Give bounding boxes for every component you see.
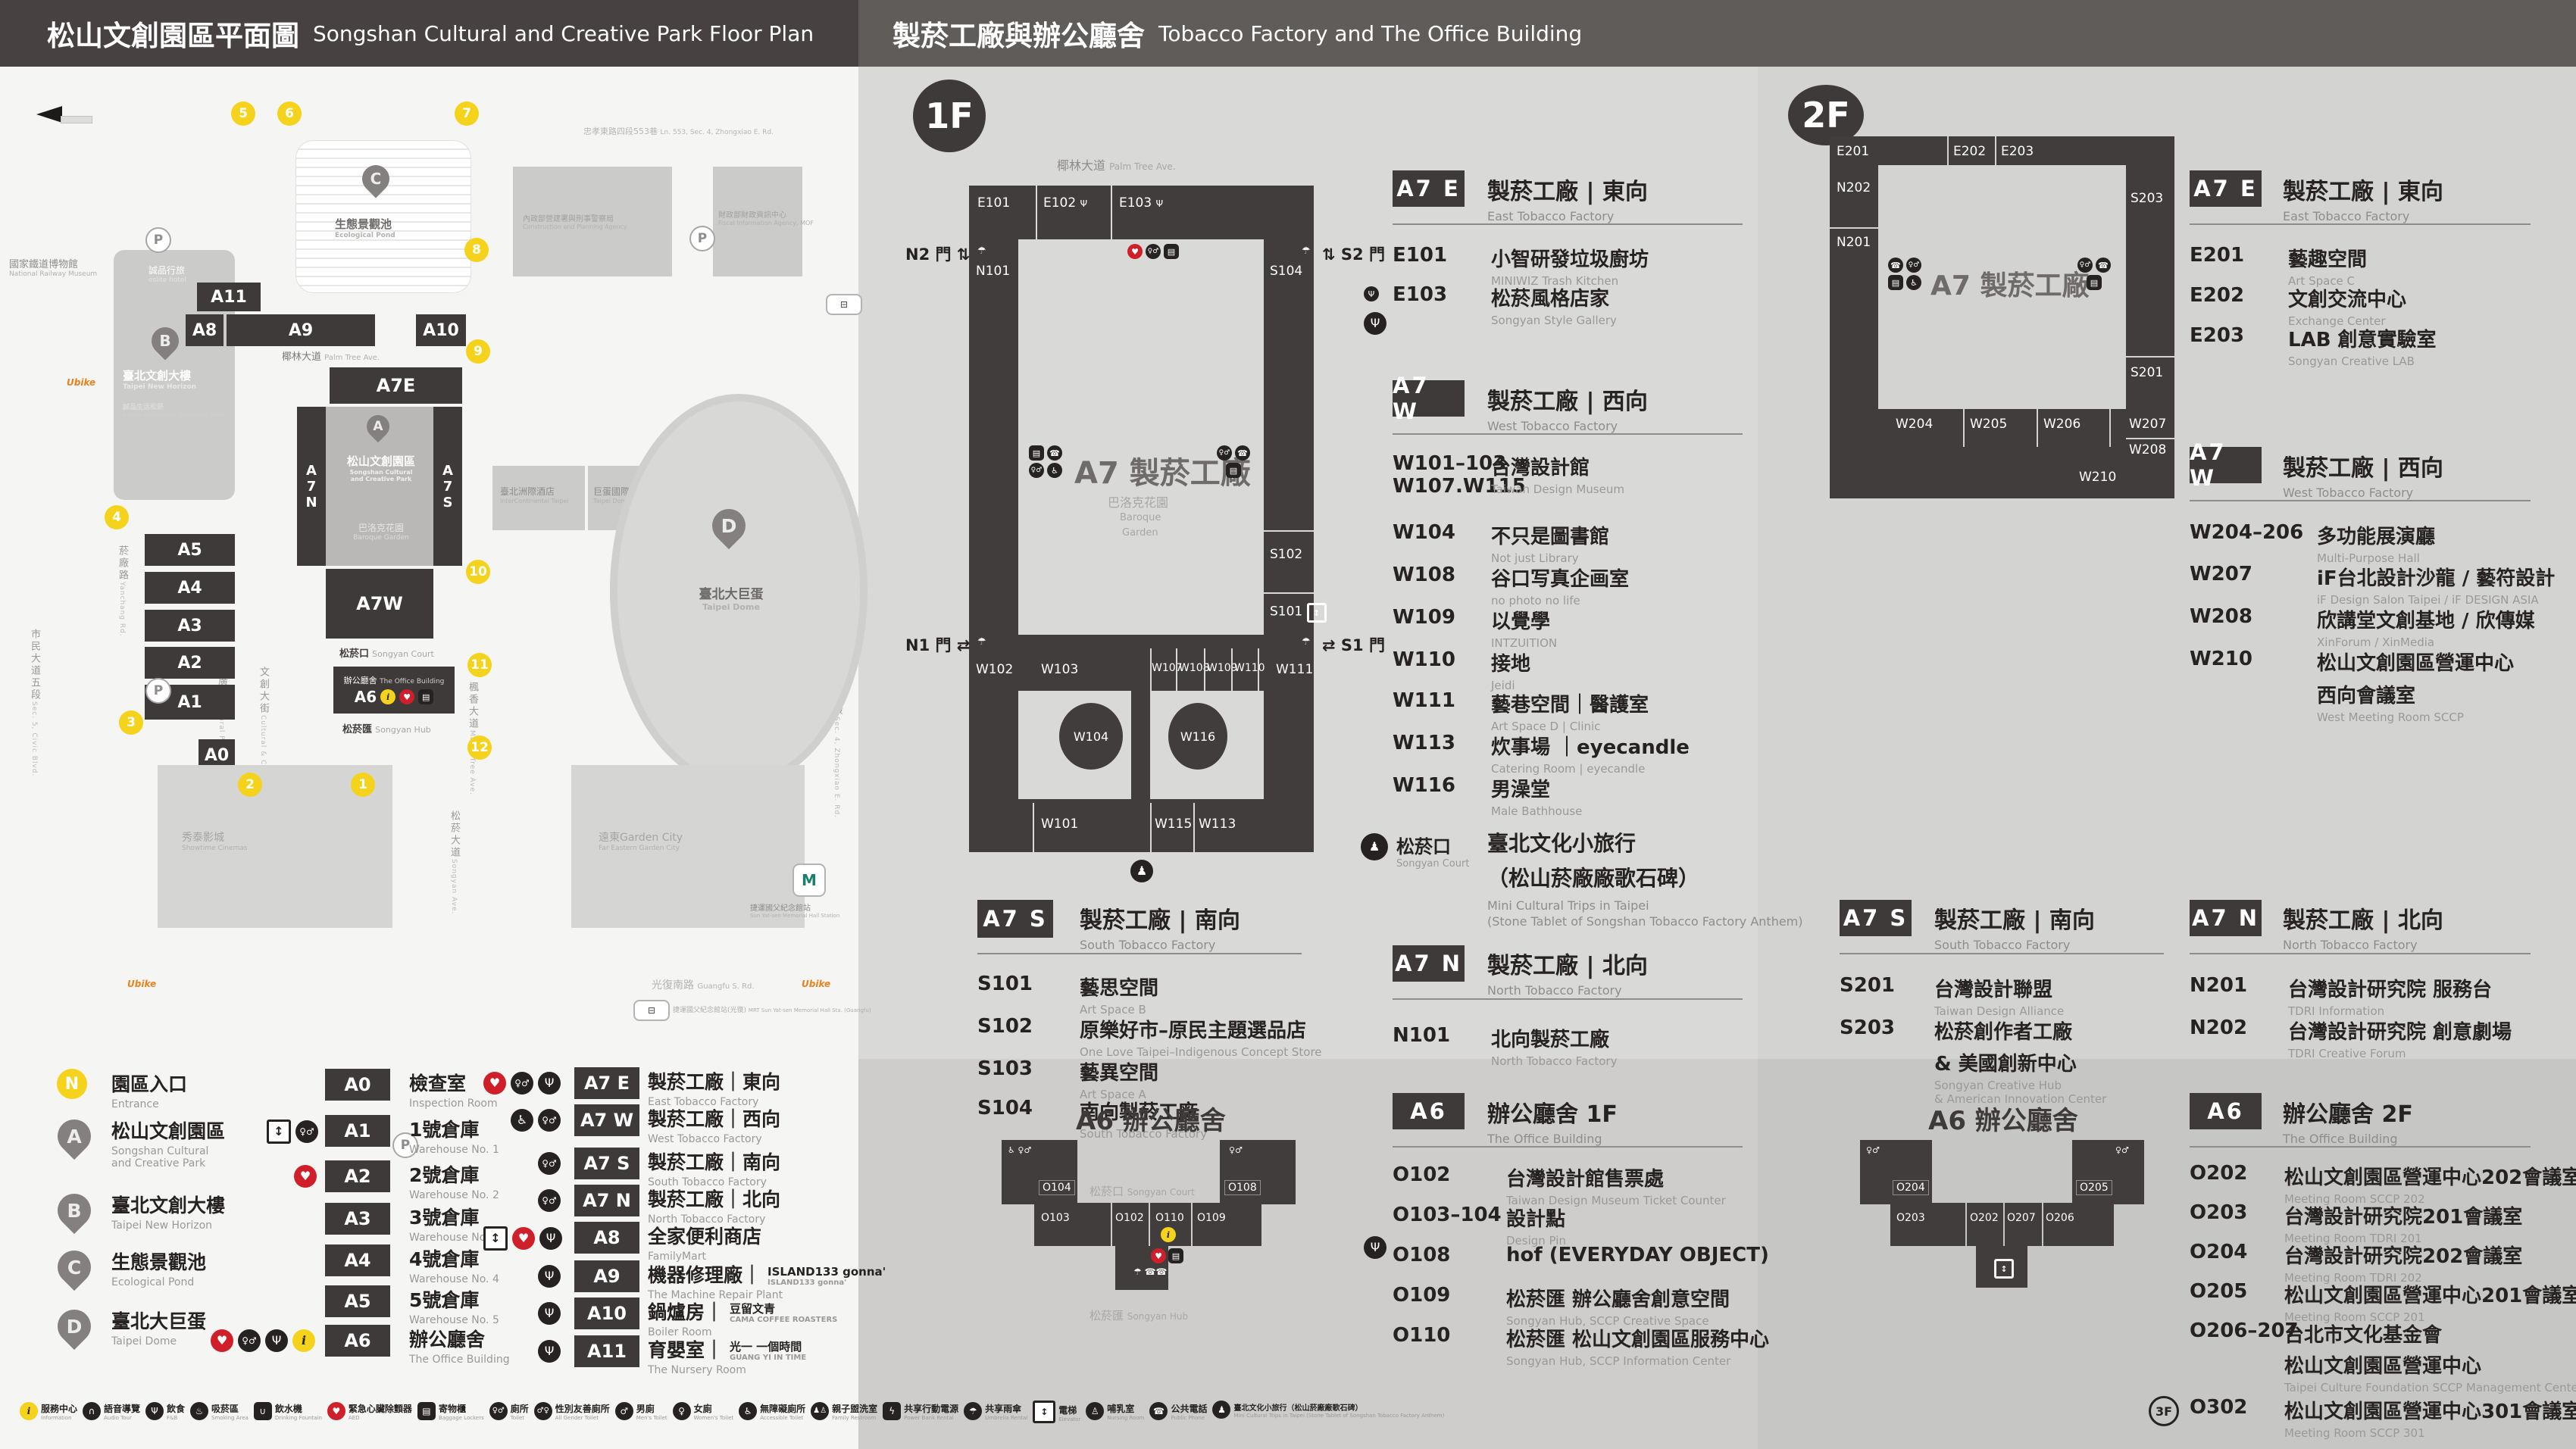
room-o205: O205 — [2076, 1180, 2112, 1195]
header-left: 松山文創園區平面圖 Songshan Cultural and Creative… — [0, 0, 858, 67]
family-restroom-icon: ♟♙ — [811, 1402, 829, 1420]
poi-intercontinental-label: 臺北洲際酒店InterContinental Taipei — [500, 485, 568, 504]
legend-a9-icons: Ψ — [538, 1265, 561, 1288]
entrance-4: 4 — [105, 505, 129, 529]
legend-badge-a8: A8 — [574, 1222, 639, 1254]
aed-icon: ♥ — [483, 1072, 506, 1095]
aed-icon: ♥ — [294, 1165, 317, 1188]
strip-phone: ☎ 公共電話Public Phone — [1149, 1401, 1207, 1421]
room-s201: S201 — [2131, 365, 2163, 380]
legend-marker-d: 臺北大巨蛋Taipei Dome — [111, 1307, 206, 1348]
info-icon: i — [20, 1402, 38, 1420]
accessible-icon: ♿ — [511, 1109, 533, 1132]
room-n201: N201 — [1837, 235, 1871, 250]
legend-a10-icons: Ψ — [538, 1302, 561, 1325]
restroom-icon: ♀♂ — [538, 1109, 561, 1132]
food-icon: Ψ — [538, 1265, 561, 1288]
section-badge-a7e-1f: A7 E — [1393, 170, 1465, 207]
map-block-a7w: A7W — [326, 569, 433, 639]
section-badge-a7w-2f: A7 W — [2190, 447, 2262, 483]
umbrella-icon: ☂ — [1302, 636, 1311, 648]
page-title-left-zh: 松山文創園區平面圖 — [47, 13, 299, 54]
strip-smoking: ♨ 吸菸區Smoking Area — [190, 1401, 249, 1421]
ubike-icon: Ubike — [802, 979, 830, 989]
road-top-label: 忠孝東路四段553巷 Ln. 553, Sec. 4, Zhongxiao E.… — [583, 125, 774, 137]
entrance-9: 9 — [466, 339, 490, 364]
parking-icon: P — [689, 226, 715, 251]
map-block-a7s: A7S — [433, 407, 462, 566]
aed-icon: ♥ — [211, 1329, 233, 1352]
room-o204: O204 — [1893, 1180, 1929, 1195]
legend-a7w-icons: ♿ ♀♂ — [511, 1109, 561, 1132]
room-w206: W206 — [2043, 417, 2080, 432]
room-w111: W111 — [1276, 662, 1313, 677]
strip-nursing: ♙ 哺乳室Nursing Room — [1086, 1401, 1144, 1421]
food-icon: Ψ — [145, 1402, 164, 1420]
plan1f-top-icons: ♥ ♀♂ ▤ — [1127, 244, 1179, 259]
pin-d-icon: D — [705, 502, 752, 549]
road-guangfu: 光復南路 Guangfu S. Rd. — [652, 977, 755, 992]
mens-toilet-icon: ♂ — [615, 1402, 633, 1420]
phone-icon: ☎ — [1888, 258, 1903, 273]
poi-fia-label: 財政部財政資訊中心Fiscal Information Agency, MOF — [718, 208, 814, 226]
strip-aed: ♥ 緊急心臟除顫器AED — [327, 1401, 412, 1421]
pin-a-icon: A — [362, 411, 394, 442]
page-title-left-en: Songshan Cultural and Creative Park Floo… — [313, 21, 814, 46]
accessible-toilet-icon: ♿ — [739, 1402, 757, 1420]
elevator-icon: ↕ — [1033, 1401, 1055, 1423]
taipei-dome-label: 臺北大巨蛋Taipei Dome — [682, 583, 780, 612]
entrance-2: 2 — [238, 773, 262, 797]
entrance-10: 10 — [466, 560, 490, 584]
map-block-a7n: A7N — [297, 407, 326, 566]
room-s104: S104 — [1270, 264, 1302, 279]
section-badge-a6-1f: A6 — [1393, 1093, 1465, 1129]
legend-badge-a10: A10 — [574, 1298, 639, 1329]
culture-trip-icon: ♟ — [1212, 1401, 1230, 1419]
legend-badge-a2: A2 — [325, 1160, 390, 1192]
legend-pin-d-icon: D — [51, 1303, 98, 1350]
restroom-icon: ♀♂ — [238, 1329, 261, 1352]
a6-1f-hub-label: 松菸匯 Songyan Hub — [1089, 1307, 1188, 1323]
room-o207: O207 — [2007, 1212, 2036, 1224]
room-e102: E102 Ψ — [1043, 195, 1087, 211]
poi-railway-museum: 國家鐵道博物館National Railway Museum — [9, 256, 97, 278]
strip-accessible: ♿ 無障礙廁所Accessible Toilet — [739, 1401, 805, 1421]
restroom-icon: ♀♂ — [1217, 445, 1232, 461]
food-icon: Ψ — [539, 1227, 562, 1250]
room-s203: S203 — [2131, 191, 2163, 206]
umbrella-icon: ☂ ☎☎ — [1133, 1266, 1168, 1277]
legend-a7n-icons: ♀♂ — [538, 1189, 561, 1212]
plan2f-west-icons: ☎ ♀♂ ▤ ♿ — [1888, 258, 1921, 290]
aed-icon: ♥ — [1151, 1248, 1166, 1263]
restroom-icon: ♀♂ — [1866, 1145, 1880, 1155]
restroom-icon: ♀♂ — [1029, 463, 1044, 478]
room-w207: W207 — [2129, 417, 2166, 432]
map-block-a8: A8 — [186, 314, 224, 346]
legend-a7s-icons: ♀♂ — [538, 1152, 561, 1175]
strip-food: Ψ 飲食F&B — [145, 1401, 185, 1421]
room-o110: O110 — [1155, 1212, 1184, 1224]
strip-culture-trip: ♟ 臺北文化小旅行（松山菸廠廠歌石碑） Mini Cultural Trips … — [1212, 1401, 1444, 1419]
phone-icon: ☎ — [1047, 445, 1062, 461]
info-icon: i — [292, 1329, 315, 1352]
map-block-a9: A9 — [227, 314, 375, 346]
legend-pin-c-icon: C — [51, 1244, 98, 1291]
accessible-icon: ♿ — [1047, 463, 1062, 478]
a6-2f-plan-title: A6 辦公廳舍 — [1928, 1100, 2078, 1137]
locker-icon: ▤ — [1226, 463, 1241, 478]
restroom-icon: ♀♂ — [1229, 1145, 1243, 1155]
section-badge-a7n-1f: A7 N — [1393, 945, 1465, 982]
gate-s1: ⇄ S1 門 — [1322, 633, 1385, 656]
phone-icon: ☎ — [1149, 1402, 1168, 1420]
pin-b-icon: B — [146, 322, 185, 361]
strip-audio-tour: ∩ 語音導覽Audio Tour — [83, 1401, 140, 1421]
road-palm-tree-ave: 椰林大道 Palm Tree Ave. — [282, 348, 380, 363]
strip-power-bank: ϟ 共享行動電源Power Bank Rental — [883, 1401, 958, 1421]
legend-badge-a7n: A7 N — [574, 1185, 639, 1216]
pond-label: 生態景觀池Ecological Pond — [335, 216, 395, 239]
section-badge-a7e-2f: A7 E — [2190, 170, 2262, 207]
locker-icon: ▤ — [1164, 244, 1179, 259]
entrance-3: 3 — [119, 710, 143, 735]
phone-icon: ☎ — [1235, 445, 1250, 461]
locker-icon: ▤ — [1029, 445, 1044, 461]
entrance-7: 7 — [455, 101, 479, 126]
section-badge-a7s-2f: A7 S — [1840, 900, 1912, 936]
phone-icon: ☎ — [2096, 258, 2111, 273]
food-icon: Ψ — [1364, 286, 1379, 301]
room-o203: O203 — [1896, 1212, 1925, 1224]
legend-a1-icons: ↕ ♀♂ — [267, 1120, 318, 1144]
food-icon: Ψ — [538, 1340, 561, 1363]
restroom-icon: ♀♂ — [511, 1072, 533, 1095]
poi-new-horizon-label: 臺北文創大樓 Taipei New Horizon 誠品生活松菸 eslite … — [123, 367, 224, 418]
audio-tour-icon: ∩ — [83, 1402, 101, 1420]
legend-pin-b-icon: B — [51, 1187, 98, 1234]
section-badge-a7s-1f: A7 S — [977, 900, 1053, 938]
room-n202: N202 — [1837, 180, 1871, 195]
aed-icon: ♥ — [327, 1402, 345, 1420]
legend-badge-a3: A3 — [325, 1203, 390, 1235]
section-badge-a7n-2f: A7 N — [2190, 900, 2262, 936]
compass-north-icon — [36, 106, 92, 126]
road-yanchang: 菸廠路Yanchang Rd. — [115, 545, 130, 637]
room-e101: E101 — [977, 195, 1010, 211]
pin-c-icon: C — [357, 160, 395, 198]
statue-icon: ♟ — [1130, 860, 1153, 882]
bus-stop-icon: ⊟ — [826, 294, 862, 315]
songyan-hub-label: 松菸匯 Songyan Hub — [342, 721, 431, 735]
floor-plan-poster: 松山文創園區平面圖 Songshan Cultural and Creative… — [0, 0, 2576, 1449]
locker-icon: ▤ — [1168, 1248, 1183, 1263]
room-o202: O202 — [1970, 1212, 1999, 1224]
elevator-icon: ↕ — [483, 1226, 508, 1251]
food-icon: Ψ — [1364, 1236, 1386, 1259]
gate-s2: ⇅ S2 門 — [1322, 242, 1385, 265]
water-icon: ∪ — [254, 1402, 272, 1420]
map-block-a7e: A7E — [330, 367, 462, 404]
locker-icon: ▤ — [417, 1402, 436, 1420]
entrance-11: 11 — [467, 653, 492, 677]
plan2f-east-icons: ♀♂ ☎ ▤ — [2077, 258, 2111, 290]
power-bank-icon: ϟ — [883, 1402, 901, 1420]
legend-a11-icons: Ψ — [538, 1340, 561, 1363]
strip-all-gender: ♂♀ 性別友善廁所All Gender Toilet — [534, 1401, 610, 1421]
court-info: 臺北文化小旅行 （松山菸廠廠歌石碑） Mini Cultural Trips i… — [1487, 827, 1803, 929]
map-block-a5: A5 — [145, 534, 235, 566]
legend-a8-icons: ↕ ♥ Ψ — [483, 1226, 562, 1251]
page-title-right-en: Tobacco Factory and The Office Building — [1158, 21, 1582, 46]
aed-icon: ♥ — [512, 1227, 535, 1250]
room-e202: E202 — [1953, 144, 1986, 159]
park-name-label: 松山文創園區 Songshan Cultural and Creative Pa… — [332, 453, 430, 482]
room-w204: W204 — [1896, 417, 1933, 432]
nursing-icon: ♙ — [1086, 1402, 1104, 1420]
room-w107: W107 — [1152, 662, 1183, 674]
umbrella-icon: ☂ — [1302, 245, 1311, 257]
parking-icon: P — [145, 678, 171, 704]
ubike-icon: Ubike — [67, 377, 95, 388]
legend-a7e-icons: ♥ ♀♂ Ψ — [483, 1072, 561, 1095]
restroom-icon: ♀♂ — [538, 1152, 561, 1175]
restroom-icon: ♀♂ — [538, 1189, 561, 1212]
legend-pin-a-icon: A — [51, 1113, 98, 1160]
room-e103: E103 Ψ — [1119, 195, 1163, 211]
umbrella-icon: ☂ — [977, 245, 986, 257]
room-o206: O206 — [2046, 1212, 2074, 1224]
food-icon: Ψ — [538, 1302, 561, 1325]
room-w109: W109 — [1207, 662, 1238, 674]
plan1f-west-icons: ▤ ☎ ♀♂ ♿ — [1029, 445, 1062, 478]
legend-a2-icons: ♥ — [294, 1165, 317, 1188]
info-icon: i — [1161, 1227, 1176, 1242]
legend-badge-a7e: A7 E — [574, 1067, 639, 1099]
map-block-a11: A11 — [197, 283, 261, 311]
entrance-6: 6 — [277, 101, 302, 126]
legend-badge-a1: A1 — [325, 1115, 390, 1147]
umbrella-icon: ☂ — [964, 1402, 982, 1420]
food-icon: Ψ — [1364, 312, 1386, 335]
legend-badge-a7s: A7 S — [574, 1148, 639, 1179]
section-badge-a6-2f: A6 — [2190, 1093, 2262, 1129]
poi-eslite-hotel: 誠品行旅eslite hotel — [148, 264, 186, 284]
map-block-a2: A2 — [145, 647, 235, 679]
a6-1f-plan-title: A6 辦公廳舍 — [1076, 1100, 1226, 1137]
locker-icon: ▤ — [2087, 275, 2102, 290]
strip-womens: ♀ 女廁Women's Toilet — [673, 1401, 733, 1421]
room-e203: E203 — [2001, 144, 2034, 159]
legend-badge-a7w: A7 W — [574, 1104, 639, 1136]
room-o102: O102 — [1115, 1212, 1144, 1224]
facility-legend-strip: i 服務中心Information ∩ 語音導覽Audio Tour Ψ 飲食F… — [20, 1401, 1444, 1423]
plan2f-a7-label: A7 製菸工廠 — [1930, 264, 2089, 303]
room-s101: S101 ↕ — [1270, 603, 1327, 623]
songyan-court-label: 松菸口 Songyan Court — [339, 645, 434, 660]
map-block-a3: A3 — [145, 610, 235, 642]
legend-a6-icons: ♥ ♀♂ Ψ i — [211, 1329, 315, 1352]
food-icon: Ψ — [265, 1329, 288, 1352]
elevator-icon: ↕ — [267, 1120, 291, 1144]
plan1f-east-icons: ♀♂ ☎ ▤ — [1217, 445, 1250, 478]
legend-badge-a11: A11 — [574, 1335, 639, 1367]
strip-water: ∪ 飲水機Drinking Fountain — [254, 1401, 322, 1421]
room-s102: S102 — [1270, 547, 1302, 562]
toilet-icon: ♀♂ — [489, 1402, 508, 1420]
ubike-icon: Ubike — [127, 979, 156, 989]
restroom-icon: ♀♂ — [1146, 244, 1161, 259]
a6-1f-court-label: 松菸口 Songyan Court — [1089, 1183, 1195, 1199]
floor-badge-1f: 1F — [913, 80, 986, 152]
room-o108: O108 — [1224, 1180, 1261, 1195]
room-n101: N101 — [976, 264, 1010, 279]
umbrella-icon: ☂ — [977, 636, 986, 648]
page-title-right-zh: 製菸工廠與辦公廳舍 — [893, 13, 1145, 54]
plan1f-palm-ave-label: 椰林大道 Palm Tree Ave. — [1057, 155, 1176, 173]
room-w208: W208 — [2129, 442, 2166, 457]
plan1f-baroque-en1: Baroque — [1120, 512, 1161, 523]
room-w102: W102 — [976, 662, 1013, 677]
room-w101: W101 — [1041, 817, 1078, 832]
baroque-garden-label: 巴洛克花園Baroque Garden — [332, 521, 430, 542]
smoking-icon: ♨ — [190, 1402, 208, 1420]
map-block-a10: A10 — [416, 314, 466, 346]
plan1f-baroque-en2: Garden — [1122, 527, 1158, 539]
room-w104: W104 — [1059, 703, 1123, 770]
all-gender-toilet-icon: ♂♀ — [534, 1402, 552, 1420]
parking-icon: P — [145, 227, 171, 253]
legend-entrance: 園區入口Entrance — [111, 1070, 187, 1110]
strip-lockers: ▤ 寄物櫃Baggage Lockers — [417, 1401, 484, 1421]
aed-icon: ♥ — [399, 689, 414, 704]
legend-badge-a5: A5 — [325, 1285, 390, 1317]
room-w116: W116 — [1168, 703, 1227, 770]
room-w210: W210 — [2079, 470, 2116, 485]
restroom-icon: ♀♂ — [1906, 258, 1921, 273]
gate-n2: N2 門 ⇅ — [905, 242, 970, 265]
womens-toilet-icon: ♀ — [673, 1402, 691, 1420]
food-icon: Ψ — [538, 1072, 561, 1095]
room-o104: O104 — [1039, 1180, 1075, 1195]
legend-entrance-icon: N — [57, 1069, 87, 1099]
strip-family: ♟♙ 親子盥洗室Family Restroom — [811, 1401, 877, 1421]
strip-mens: ♂ 男廁Men's Toilet — [615, 1401, 667, 1421]
road-civic-blvd: 市民大道五段Sec. 5, Civic Blvd. — [27, 629, 42, 776]
section-badge-a7w-1f: A7 W — [1393, 380, 1465, 417]
entrance-8: 8 — [464, 238, 489, 262]
legend-marker-c: 生態景觀池Ecological Pond — [111, 1248, 206, 1288]
bus-stop-icon: ⊟ — [633, 1000, 670, 1021]
restroom-icon: ♀♂ — [2115, 1145, 2129, 1155]
map-block-a4: A4 — [145, 572, 235, 604]
room-o109: O109 — [1197, 1212, 1226, 1224]
bus-stop-label: 捷運國父紀念館站(光復) MRT Sun Yat-sen Memorial Ha… — [673, 1004, 871, 1014]
room-w110: W110 — [1234, 662, 1265, 674]
elevator-icon: ↕ — [1994, 1259, 2014, 1279]
road-songyan-ave: 松菸大道Songyan Ave. — [447, 810, 461, 914]
entrance-1: 1 — [351, 773, 375, 797]
room-w205: W205 — [1970, 417, 2007, 432]
strip-toilet: ♀♂ 廁所Toilet — [489, 1401, 529, 1421]
mrt-station-icon: M — [792, 863, 826, 897]
locker-icon: ▤ — [418, 689, 433, 704]
header-right: 製菸工廠與辦公廳舍 Tobacco Factory and The Office… — [858, 0, 2576, 67]
gate-n1: N1 門 ⇄ — [905, 633, 970, 656]
legend-badge-a0: A0 — [325, 1069, 390, 1101]
restroom-icon: ♀♂ — [295, 1120, 318, 1143]
plan1f-baroque: 巴洛克花園 — [1108, 492, 1168, 511]
info-icon: i — [380, 689, 395, 704]
poi-garden-city-label: 遠東Garden CityFar Eastern Garden City — [599, 829, 683, 852]
restroom-icon: ♀♂ — [2077, 258, 2093, 273]
mrt-station-label: 捷運國父紀念館站Sun Yat-sen Memorial Hall Statio… — [750, 901, 839, 919]
legend-marker-a: 松山文創園區 Songshan Culturaland Creative Par… — [111, 1116, 225, 1170]
accessible-icon: ♿ ♀♂ — [1008, 1145, 1031, 1155]
entrance-5: 5 — [231, 101, 255, 126]
map-block-a6-office: 辦公廳舍 The Office Building A6 i ♥ ▤ — [333, 667, 455, 714]
floor-3f-badge: 3F — [2149, 1396, 2179, 1426]
poi-showtime-label: 秀泰影城Showtime Cinemas — [182, 829, 247, 852]
strip-information: i 服務中心Information — [20, 1401, 77, 1421]
court-label: 松菸口 Songyan Court — [1396, 832, 1469, 870]
statue-icon: ♟ — [1361, 833, 1388, 860]
entrance-12: 12 — [467, 735, 492, 760]
locker-icon: ▤ — [1888, 275, 1903, 290]
legend-badge-a9: A9 — [574, 1260, 639, 1292]
room-w103: W103 — [1041, 662, 1078, 677]
strip-elevator: ↕ 電梯Elevator — [1033, 1401, 1080, 1423]
aed-icon: ♥ — [1127, 244, 1143, 259]
room-w115: W115 — [1155, 817, 1192, 832]
room-w113: W113 — [1199, 817, 1236, 832]
room-e201: E201 — [1837, 144, 1869, 159]
poi-cpa-label: 內政部營建署與刑事警察局Construction and Planning Ag… — [523, 212, 627, 230]
legend-marker-b: 臺北文創大樓Taipei New Horizon — [111, 1191, 225, 1232]
legend-badge-a4: A4 — [325, 1244, 390, 1276]
strip-umbrella: ☂ 共享雨傘Umbrella Rental — [964, 1401, 1027, 1421]
accessible-icon: ♿ — [1906, 275, 1921, 290]
legend-badge-a6: A6 — [325, 1325, 390, 1357]
room-o103: O103 — [1041, 1212, 1070, 1224]
